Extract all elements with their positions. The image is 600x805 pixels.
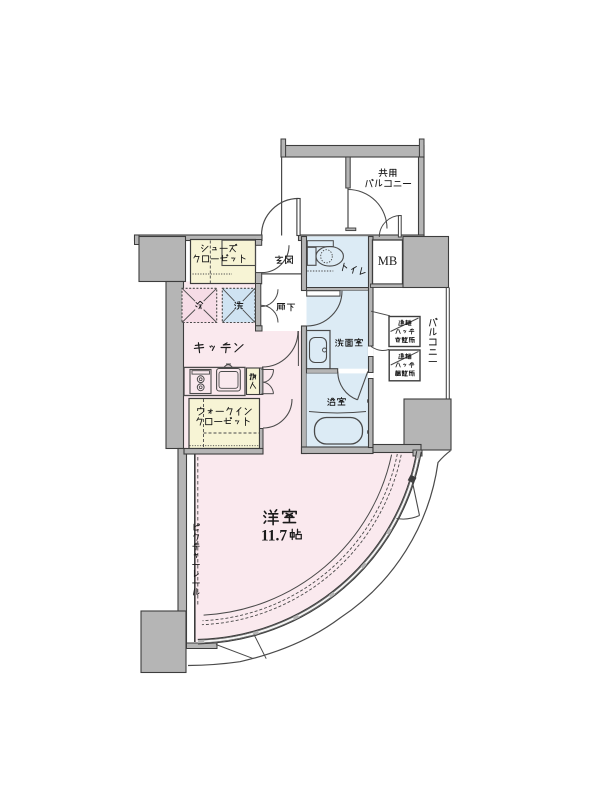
svg-text:11.7: 11.7 xyxy=(261,528,288,545)
svg-text:MB: MB xyxy=(378,254,397,268)
